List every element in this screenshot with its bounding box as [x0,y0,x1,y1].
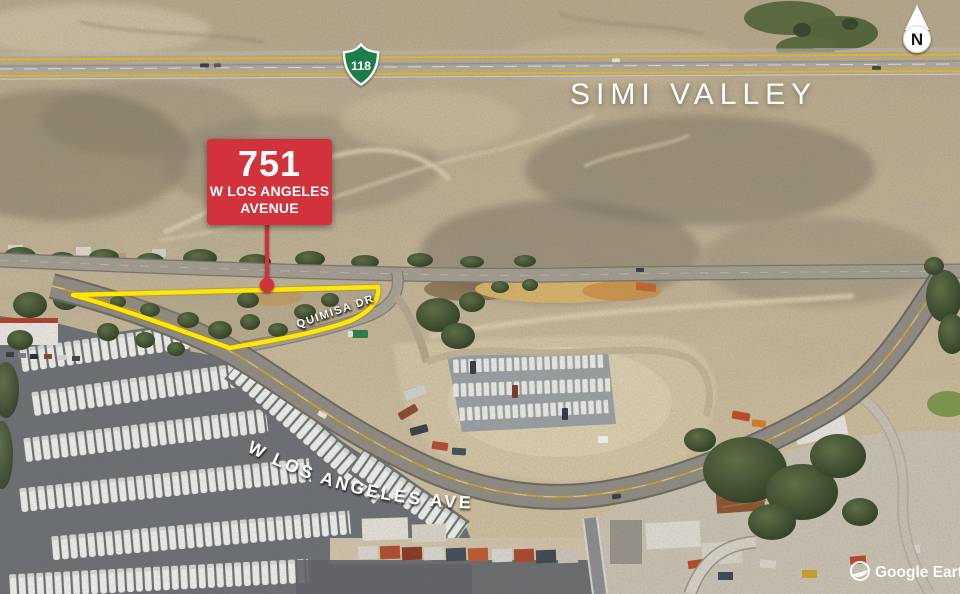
callout-street-line1: W LOS ANGELES [209,183,330,200]
callout-street-line2: AVENUE [209,200,330,217]
city-label: SIMI VALLEY [570,78,817,112]
callout-address-number: 751 [209,145,330,183]
watermark-text: Google Earth [875,564,960,581]
north-letter: N [911,30,923,49]
shield-number: 118 [351,59,371,73]
property-callout: 751 W LOS ANGELES AVENUE [207,139,332,225]
aerial-map: 118 N W LOS ANGELES AVE Google Earth SIM… [0,0,960,594]
location-dot-icon [260,278,274,292]
